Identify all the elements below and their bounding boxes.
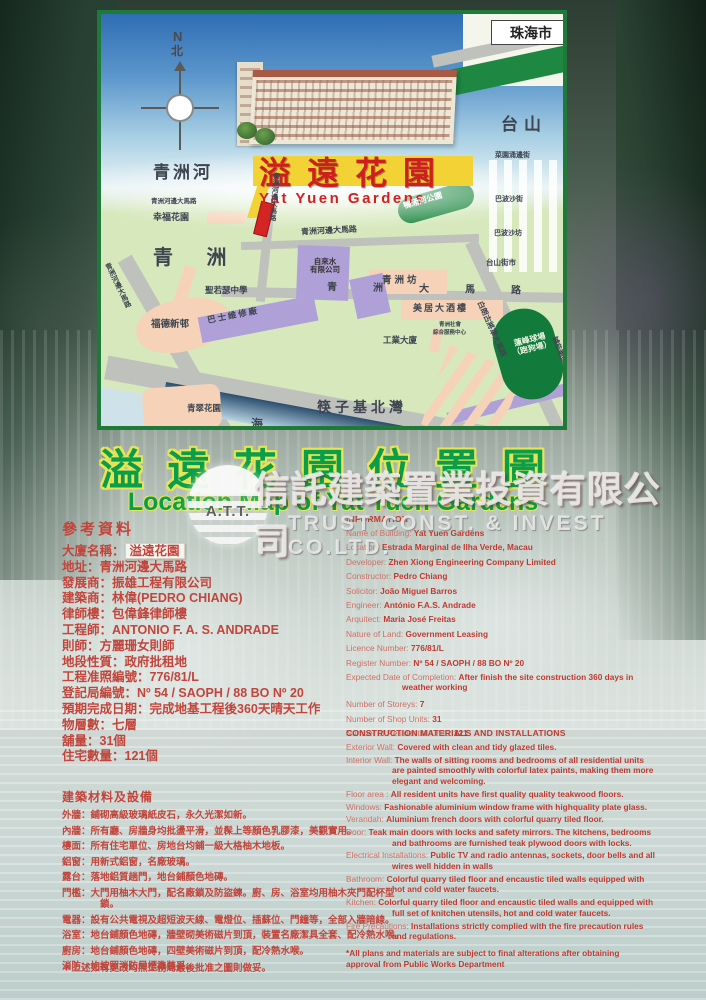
con-label: Interior Wall:	[346, 755, 395, 765]
con-value: Public TV and radio antennas, sockets, d…	[392, 850, 655, 871]
map-label-service-center: 青洲社會	[439, 322, 461, 328]
construction-section-en: CONSTRUCTION MATERIALS AND INSTALLATIONS…	[346, 728, 658, 944]
map-label-water-company: 自來水有限公司	[305, 258, 345, 275]
info-value: 31	[432, 714, 441, 724]
info-value: Government Leasing	[406, 629, 489, 639]
info-solicitor: Solicitor: João Miguel Barros	[346, 586, 652, 596]
con-label: Kitchen:	[346, 897, 378, 907]
ref-label: 則師：	[62, 639, 100, 653]
con-electrical: Electrical Installations: Public TV and …	[346, 850, 658, 871]
ref-constructor: 建築商：林偉(PEDRO CHIANG)	[62, 592, 362, 605]
con-bathroom: Bathroom: Colorful quarry tiled floor an…	[346, 874, 658, 895]
ref-value: 31個	[100, 734, 126, 748]
con-value: Fashionable aluminium window frame with …	[384, 802, 647, 812]
ref-value: 振雄工程有限公司	[112, 576, 212, 590]
info-engineer: Engineer: António F.A.S. Andrade	[346, 600, 652, 610]
ref-label: 大廈名稱：	[62, 544, 125, 558]
ref-label: 建築商：	[62, 591, 112, 605]
ref-label: 地段性質：	[62, 655, 125, 669]
ref-value: 七層	[112, 718, 137, 732]
ref-value: ANTONIO F. A. S. ANDRADE	[112, 623, 279, 637]
ref-label: 物層數：	[62, 718, 112, 732]
ref-label: 發展商：	[62, 576, 112, 590]
location-map: 溢遠花園 Yat Yuen Gardens N 北 珠海市 青洲河 鴨涌河公園 …	[97, 10, 567, 430]
info-value: António F.A.S. Andrade	[384, 600, 476, 610]
compass: N 北	[149, 30, 211, 154]
map-label-street: 菜園涌邊街	[495, 152, 530, 160]
ref-developer: 發展商：振雄工程有限公司	[62, 577, 362, 590]
ref-label: 預期完成日期：	[62, 702, 150, 716]
map-label-street: 巴波沙坊	[494, 230, 522, 238]
info-label: Constructor:	[346, 571, 394, 581]
map-label-qingzhou-river: 青洲河	[153, 164, 213, 183]
info-land-nature: Nature of Land: Government Leasing	[346, 629, 652, 639]
ref-value: 政府批租地	[125, 655, 188, 669]
ref-completion: 預期完成日期：完成地基工程後360天晴天工作	[62, 703, 362, 716]
con-value: Teak main doors with locks and safety mi…	[369, 827, 651, 848]
info-label: Nature of Land:	[346, 629, 406, 639]
ref-storeys: 物層數：七層	[62, 719, 362, 732]
ref-value: 方麗珊女則師	[100, 639, 175, 653]
ref-value: 林偉(PEDRO CHIANG)	[112, 591, 243, 605]
ref-label: 舖量：	[62, 734, 100, 748]
ref-value: Nº 54 / SAOPH / 88 BO Nº 20	[137, 686, 304, 700]
con-label: Door:	[346, 827, 369, 837]
map-label-bay: 筷子基北灣	[317, 400, 407, 415]
info-label: Engineer:	[346, 600, 384, 610]
company-name-en: TRUST CONST. & INVEST CO.LTD.	[288, 512, 690, 560]
info-constructor: Constructor: Pedro Chiang	[346, 571, 652, 581]
con-value: The walls of sitting rooms and bedrooms …	[392, 755, 653, 786]
ref-solicitor: 律師樓：包偉鋒律師樓	[62, 608, 362, 621]
info-label: Number of Storeys:	[346, 699, 420, 709]
road-marginal-top	[241, 234, 479, 250]
ref-value: 包偉鋒律師樓	[112, 607, 187, 621]
con-kitchen: Kitchen: Colorful quarry tiled floor and…	[346, 897, 658, 918]
map-label-fortune-estate: 福德新邨	[151, 320, 189, 330]
info-licence: Licence Number: 776/81/L	[346, 643, 652, 653]
info-label: Arquitect:	[346, 614, 383, 624]
con-value: Installations strictly complied with the…	[392, 921, 643, 942]
info-label: Number of Shop Units:	[346, 714, 432, 724]
info-label: Solicitor:	[346, 586, 380, 596]
ref-value: 776/81/L	[150, 670, 199, 684]
ref-label: 律師樓：	[62, 607, 112, 621]
info-completion: Expected Date of Completion: After finis…	[346, 672, 652, 692]
map-label-taishan-market: 台山街市	[486, 259, 516, 267]
map-label-taishan: 台山	[501, 116, 547, 135]
ref-label: 工程准照編號：	[62, 670, 150, 684]
con-value: Colorful quarry tiled floor and encausti…	[378, 897, 653, 918]
map-label-green-garden: 青翠花園	[187, 404, 221, 413]
banner-title-zh: 溢遠花園	[259, 148, 451, 194]
con-value: All resident units have first quality qu…	[391, 789, 624, 799]
construction-header: CONSTRUCTION MATERIALS AND INSTALLATIONS	[346, 728, 658, 738]
con-fire: Fire Precautions: Installations strictly…	[346, 921, 658, 942]
con-verandah: Verandah: Aluminium french doors with co…	[346, 814, 658, 825]
ref-value: 青洲河邊大馬路	[100, 560, 188, 574]
info-value: 7	[420, 699, 425, 709]
ref-label: 地址：	[62, 560, 100, 574]
info-value: 776/81/L	[411, 643, 444, 653]
map-label-zhuhai: 珠海市	[510, 23, 552, 43]
con-label: Verandah:	[346, 814, 386, 824]
con-floor: Floor area : All resident units have fir…	[346, 789, 658, 800]
ref-label: 登記局編號：	[62, 686, 137, 700]
footnote-en: *All plans and materials are subject to …	[346, 948, 636, 970]
con-value: Aluminium french doors with colorful qua…	[386, 814, 604, 824]
info-storeys: Number of Storeys: 7	[346, 699, 652, 709]
compass-circle	[166, 94, 194, 122]
ref-residential: 住宅數量：121個	[62, 750, 362, 763]
info-value: Maria José Freitas	[383, 614, 455, 624]
con-exterior-wall: Exterior Wall: Covered with clean and ti…	[346, 742, 658, 753]
info-value: Pedro Chiang	[394, 571, 448, 581]
info-shops: Number of Shop Units: 31	[346, 714, 652, 724]
compass-n-label: N	[173, 30, 182, 44]
info-label: Expected Date of Completion:	[346, 672, 459, 682]
con-door: Door: Teak main doors with locks and saf…	[346, 827, 658, 848]
ref-engineer: 工程師：ANTONIO F. A. S. ANDRADE	[62, 624, 362, 637]
con-label: Floor area :	[346, 789, 391, 799]
con-value: Covered with clean and tidy glazed tiles…	[397, 742, 556, 752]
ref-label: 住宅數量：	[62, 749, 125, 763]
ref-value: 121個	[125, 749, 158, 763]
info-value: João Miguel Barros	[380, 586, 457, 596]
map-label-hotel: 美居大酒樓	[413, 304, 468, 314]
ref-land-nature: 地段性質：政府批租地	[62, 656, 362, 669]
ref-architect: 則師：方麗珊女則師	[62, 640, 362, 653]
con-label: Exterior Wall:	[346, 742, 397, 752]
ref-licence: 工程准照編號：776/81/L	[62, 671, 362, 684]
con-label: Bathroom:	[346, 874, 387, 884]
con-interior-wall: Interior Wall: The walls of sitting room…	[346, 755, 658, 787]
info-register: Register Number: Nº 54 / SAOPH / 88 BO N…	[346, 658, 652, 668]
con-label: Electrical Installations:	[346, 850, 430, 860]
ref-shops: 舖量：31個	[62, 735, 362, 748]
info-label: Register Number:	[346, 658, 413, 668]
map-label-street: 巴波沙街	[495, 196, 523, 204]
info-value: Nº 54 / SAOPH / 88 BO Nº 20	[413, 658, 524, 668]
con-windows: Windows: Fashionable aluminium window fr…	[346, 802, 658, 813]
building-photo	[249, 70, 457, 144]
map-label-qingzhou: 青 洲	[153, 247, 241, 269]
con-label: Fire Precautions:	[346, 921, 411, 931]
company-watermark: A.T.T. 信託建築置業投資有限公司 TRUST CONST. & INVES…	[150, 455, 690, 553]
map-label-industrial: 工業大廈	[383, 336, 417, 345]
con-value: Colorful quarry tiled floor and encausti…	[387, 874, 645, 895]
zhuhai-label-box: 珠海市	[491, 20, 567, 45]
ref-label: 工程師：	[62, 623, 112, 637]
map-label-service-center: 綜合服務中心	[433, 330, 466, 336]
info-architect: Arquitect: Maria José Freitas	[346, 614, 652, 624]
ref-value: 完成地基工程後360天晴天工作	[150, 702, 321, 716]
map-label-marginal-road: 青洲河邊大馬路	[151, 198, 197, 205]
compass-north-label: 北	[171, 45, 183, 58]
banner-title-en: Yat Yuen Gardens	[259, 190, 426, 207]
water-co-line2: 有限公司	[310, 265, 340, 274]
map-label-happiness-garden: 幸福花園	[153, 213, 189, 223]
ref-register: 登記局編號：Nº 54 / SAOPH / 88 BO Nº 20	[62, 687, 362, 700]
tree-icon	[255, 128, 275, 145]
con-label: Windows:	[346, 802, 384, 812]
map-label-marginal-road: 青洲河邊大馬路	[301, 226, 357, 238]
info-label: Licence Number:	[346, 643, 411, 653]
map-label-sea: 海	[251, 418, 263, 430]
tree-icon	[237, 122, 257, 139]
map-label-school: 聖若瑟中學	[205, 286, 248, 295]
